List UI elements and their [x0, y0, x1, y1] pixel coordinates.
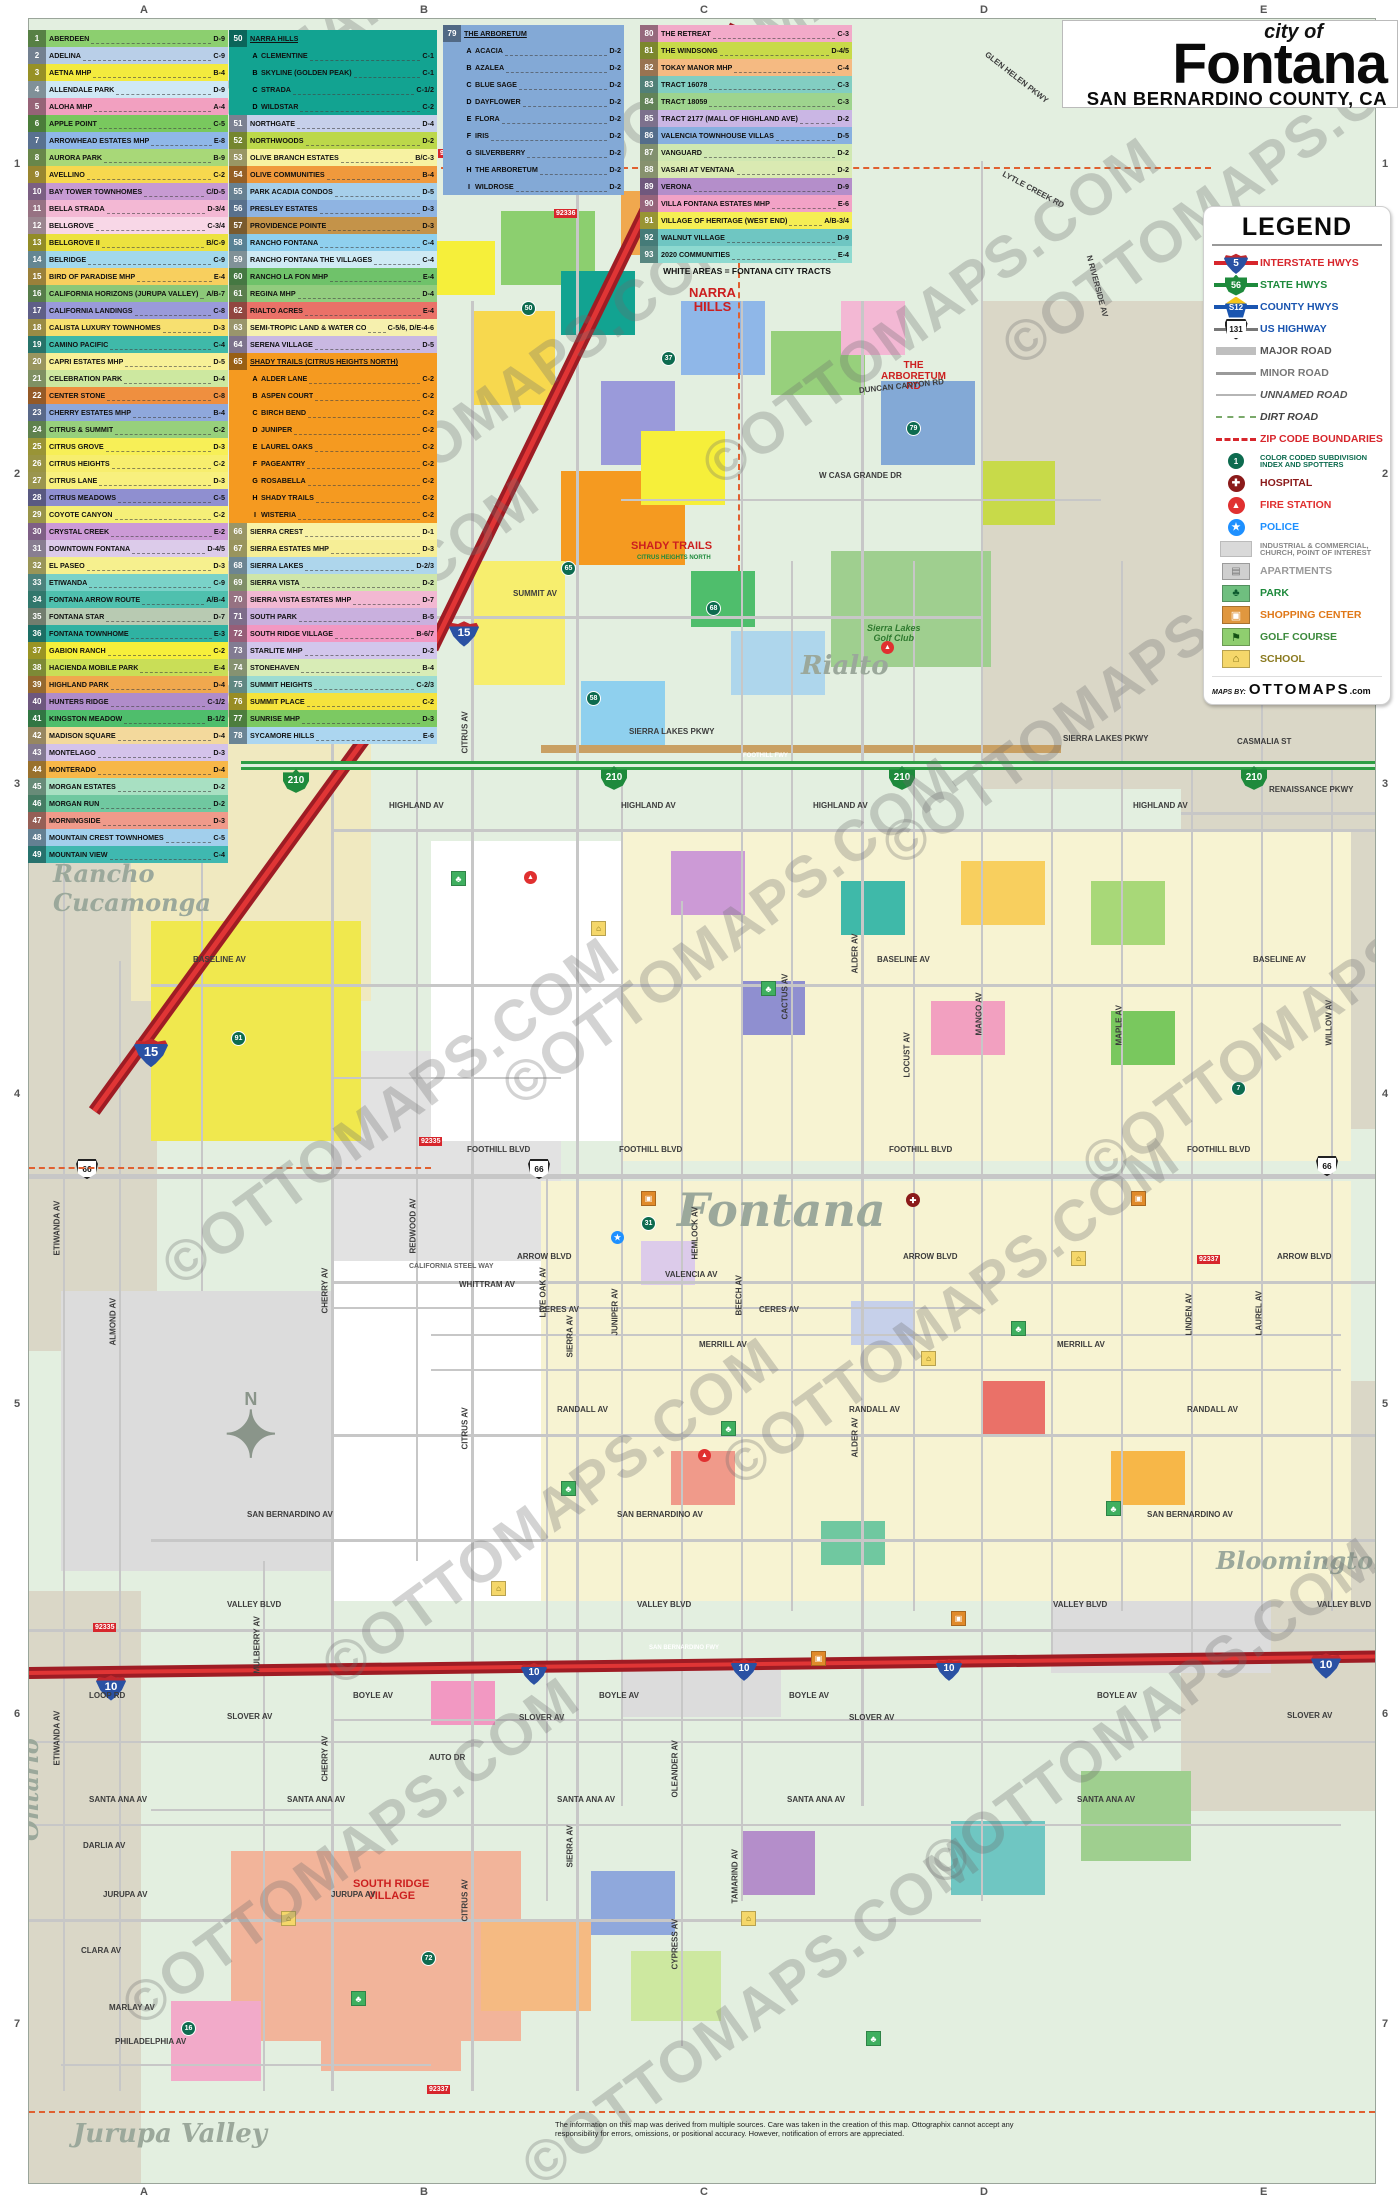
district-subtext: CITRUS HEIGHTS NORTH: [637, 555, 711, 561]
index-subdivision-name: APPLE POINT: [49, 119, 97, 128]
street-label: HEMLOCK AV: [691, 1207, 700, 1260]
index-row: 11BELLA STRADAD-3/4: [28, 200, 228, 217]
index-grid-ref: D-2: [609, 97, 621, 106]
subdivision-spotter: 16: [181, 2021, 196, 2036]
index-leader: [107, 203, 206, 213]
city-label: Fontana: [677, 1183, 886, 1237]
index-number-badge: 26: [28, 455, 46, 472]
index-block-header: 50NARRA HILLS: [229, 30, 437, 47]
road: [621, 761, 623, 1806]
index-sub-letter: A: [249, 374, 261, 383]
legend-icon-cell: ▤: [1212, 563, 1260, 580]
credit-tld: .com: [1350, 686, 1371, 696]
legend-row: ⌂SCHOOL: [1212, 648, 1382, 670]
legend-divider: [1212, 244, 1382, 246]
grid-row-label: 1: [1382, 158, 1388, 170]
legend-label: US HIGHWAY: [1260, 324, 1327, 335]
index-number-badge: 76: [229, 693, 247, 710]
index-grid-ref: C-2: [213, 510, 225, 519]
street-label: ARROW BLVD: [903, 1252, 958, 1261]
index-row: 44MONTERADOD-4: [28, 761, 228, 778]
index-grid-ref: D-3: [213, 748, 225, 757]
index-number-badge: 51: [229, 115, 247, 132]
index-number-badge: 77: [229, 710, 247, 727]
street-label: CLARA AV: [81, 1946, 121, 1955]
index-subdivision-name: AURORA PARK: [49, 153, 102, 162]
index-number-badge: 7: [28, 132, 46, 149]
index-row: 39HIGHLAND PARKD-4: [28, 676, 228, 693]
index-number-badge: 11: [28, 200, 46, 217]
index-number-badge: 53: [229, 149, 247, 166]
unnamed-road-icon: [1216, 394, 1256, 396]
index-number-badge: 40: [28, 693, 46, 710]
road: [29, 1824, 1341, 1826]
state-shield-icon: 56: [1225, 275, 1247, 296]
police-icon: ★: [1228, 519, 1245, 536]
index-grid-ref: C-9: [213, 51, 225, 60]
index-row: 71SOUTH PARKB-5: [229, 608, 437, 625]
index-subdivision-name: AETNA MHP: [49, 68, 91, 77]
legend-label: COLOR CODED SUBDIVISION INDEX AND SPOTTE…: [1260, 454, 1367, 469]
index-grid-ref: D-3: [213, 442, 225, 451]
index-grid-ref: C-2: [422, 442, 434, 451]
index-subdivision-name: MONTELAGO: [49, 748, 96, 757]
index-grid-ref: C-1/2: [207, 697, 225, 706]
index-row: 16CALIFORNIA HORIZONS (JURUPA VALLEY)A/B…: [28, 285, 228, 302]
index-number-badge: 89: [640, 178, 658, 195]
index-leader: [103, 815, 212, 825]
index-leader: [327, 169, 421, 179]
index-number-badge: 20: [28, 353, 46, 370]
fontana-map-page: 1515152102102102101010101010666666923369…: [0, 0, 1400, 2199]
grid-column-label: E: [1260, 4, 1267, 16]
index-number-badge: 70: [229, 591, 247, 608]
legend-icon-cell: 56: [1212, 275, 1260, 296]
index-number-badge: 61: [229, 285, 247, 302]
index-leader: [101, 798, 211, 808]
index-subdivision-name: ALLENDALE PARK: [49, 85, 114, 94]
patch-golf: [831, 551, 991, 667]
index-number-badge: 1: [28, 30, 46, 47]
index-row: 62RIALTO ACRESE-4: [229, 302, 437, 319]
grid-row-label: 4: [14, 1088, 20, 1100]
index-row: 43MONTELAGOD-3: [28, 744, 228, 761]
index-number-badge: 28: [28, 489, 46, 506]
road: [63, 841, 65, 2091]
index-grid-ref: E-4: [423, 306, 434, 315]
legend-icon-cell: ✚: [1212, 475, 1260, 492]
index-grid-ref: D-4: [213, 680, 225, 689]
index-leader: [309, 373, 420, 383]
index-row: 26CITRUS HEIGHTSC-2: [28, 455, 228, 472]
index-leader: [96, 220, 206, 230]
index-sub-letter: B: [249, 391, 261, 400]
index-number-badge: 86: [640, 127, 658, 144]
major-road-icon: [1216, 347, 1256, 355]
index-grid-ref: C-2: [422, 374, 434, 383]
index-grid-ref: E-4: [423, 272, 434, 281]
index-leader: [306, 135, 421, 145]
street-label: TAMARIND AV: [731, 1849, 740, 1904]
index-number-badge: 30: [28, 523, 46, 540]
zip-code-label: 92336: [554, 209, 577, 218]
index-grid-ref: C-2: [422, 425, 434, 434]
index-leader: [93, 67, 211, 77]
index-number-badge: 42: [28, 727, 46, 744]
index-subdivision-name: RANCHO LA FON MHP: [250, 272, 328, 281]
index-leader: [727, 232, 836, 242]
street-label: SANTA ANA AV: [287, 1795, 345, 1804]
street-label: CITRUS AV: [461, 1879, 470, 1921]
park-icon: ♣: [1011, 1321, 1026, 1336]
road: [1331, 761, 1333, 1611]
index-leader: [125, 356, 211, 366]
index-leader: [99, 475, 211, 485]
index-grid-ref: D-4: [213, 731, 225, 740]
subdivision-spotter: 68: [706, 601, 721, 616]
index-row: 52NORTHWOODSD-2: [229, 132, 437, 149]
golf-club-label: Sierra Lakes Golf Club: [867, 623, 921, 643]
index-number-badge: 44: [28, 761, 46, 778]
index-grid-ref: D-9: [213, 85, 225, 94]
index-leader: [308, 475, 421, 485]
subdivision-spotter: 37: [661, 351, 676, 366]
index-leader: [305, 560, 414, 570]
index-subdivision-name: RANCHO FONTANA THE VILLAGES: [250, 255, 372, 264]
street-label: ARROW BLVD: [1277, 1252, 1332, 1261]
index-number-badge: 9: [28, 166, 46, 183]
index-subdivision-name: SIERRA LAKES: [250, 561, 303, 570]
index-sub-letter: F: [249, 459, 261, 468]
index-leader: [298, 509, 420, 519]
index-number-badge: 27: [28, 472, 46, 489]
index-leader: [137, 271, 212, 281]
index-subdivision-name: DOWNTOWN FONTANA: [49, 544, 130, 553]
legend-row: S12COUNTY HWYS: [1212, 296, 1382, 318]
street-label: RANDALL AV: [1187, 1405, 1238, 1414]
index-subdivision-name: 2020 COMMUNITIES: [661, 250, 730, 259]
title-fontana: Fontana: [1063, 41, 1387, 88]
index-number-badge: 12: [28, 217, 46, 234]
zip-code-label: 92337: [427, 2085, 450, 2094]
index-sub-letter: F: [463, 131, 475, 140]
index-leader: [133, 407, 211, 417]
index-leader: [709, 96, 835, 106]
index-grid-ref: C-2: [422, 510, 434, 519]
index-grid-ref: C-4: [837, 63, 849, 72]
park-icon: ♣: [1106, 1501, 1121, 1516]
index-sub-letter: H: [249, 493, 261, 502]
index-grid-ref: D-3: [213, 476, 225, 485]
index-leader: [302, 577, 421, 587]
road: [861, 301, 864, 1806]
index-grid-ref: E-8: [214, 136, 225, 145]
street-label: SAN BERNARDINO AV: [247, 1510, 333, 1519]
index-grid-ref: C-5: [213, 493, 225, 502]
index-sub-row: BSKYLINE (GOLDEN PEAK)C-1: [229, 64, 437, 81]
city-label: Ontario: [28, 1738, 44, 1841]
index-row: 75SUMMIT HEIGHTSC-2/3: [229, 676, 437, 693]
patch: [981, 461, 1055, 525]
index-grid-ref: D-2: [422, 646, 434, 655]
shopping-center-icon: ▣: [1222, 606, 1250, 624]
subdivision-spotter: 58: [586, 691, 601, 706]
index-number-badge: 68: [229, 557, 247, 574]
street-label: MULBERRY AV: [253, 1616, 262, 1673]
police-icon: ★: [611, 1231, 624, 1244]
index-sub-letter: C: [249, 408, 261, 417]
index-sub-row: HTHE ARBORETUMD-2: [443, 161, 624, 178]
legend-icon-cell: 1: [1212, 452, 1260, 470]
index-subdivision-name: SYCAMORE HILLS: [250, 731, 314, 740]
street-label: CHERRY AV: [321, 1736, 330, 1782]
index-leader: [108, 645, 212, 655]
index-number-badge: 57: [229, 217, 247, 234]
index-number-badge: 78: [229, 727, 247, 744]
patch: [481, 1921, 591, 2011]
index-sub-letter: D: [249, 425, 261, 434]
street-label: CYPRESS AV: [671, 1919, 680, 1970]
road: [61, 2064, 431, 2066]
index-row: 89VERONAD-9: [640, 178, 852, 195]
index-number-badge: 91: [640, 212, 658, 229]
index-row: 33ETIWANDAC-9: [28, 574, 228, 591]
school-icon: ⌂: [1222, 650, 1250, 668]
street-label: HIGHLAND AV: [1133, 801, 1188, 810]
index-grid-ref: C-3: [837, 29, 849, 38]
index-subdivision-name: CRYSTAL CREEK: [49, 527, 109, 536]
index-sub-letter: I: [249, 510, 261, 519]
index-row: 5ALOHA MHPA-4: [28, 98, 228, 115]
index-row: 90VILLA FONTANA ESTATES MHPE-6: [640, 195, 852, 212]
index-number-badge: 19: [28, 336, 46, 353]
grid-row-label: 3: [1382, 778, 1388, 790]
index-leader: [107, 390, 211, 400]
grid-column-label: D: [980, 2186, 988, 2198]
index-grid-ref: B-4: [213, 408, 225, 417]
index-leader: [144, 186, 204, 196]
index-subdivision-name: TOKAY MANOR MHP: [661, 63, 732, 72]
index-grid-ref: A/B-7: [206, 289, 225, 298]
legend-icon-cell: [1212, 438, 1260, 441]
index-row: 86VALENCIA TOWNHOUSE VILLASD-5: [640, 127, 852, 144]
street-label: MERRILL AV: [1057, 1340, 1105, 1349]
index-row: 66SIERRA CRESTD-1: [229, 523, 437, 540]
index-subdivision-name: VERONA: [661, 182, 692, 191]
index-number-badge: 32: [28, 557, 46, 574]
grid-row-label: 6: [14, 1708, 20, 1720]
index-subdivision-name: VANGUARD: [661, 148, 702, 157]
index-sub-row: FPAGEANTRYC-2: [229, 455, 437, 472]
fire-station-icon: ▲: [524, 871, 537, 884]
index-grid-ref: C/D-5: [206, 187, 225, 196]
index-subdivision-name: NORTHGATE: [250, 119, 295, 128]
index-grid-ref: C-2: [422, 476, 434, 485]
legend-icon-cell: ★: [1212, 519, 1260, 536]
patch: [931, 1001, 1005, 1055]
freeway-label: FOOTHILL FWY: [743, 753, 788, 759]
index-row: 58RANCHO FONTANAC-4: [229, 234, 437, 251]
index-subdivision-name: STONEHAVEN: [250, 663, 299, 672]
legend-label: POLICE: [1260, 522, 1299, 533]
index-column: 1ABERDEEND-92ADELINAC-93AETNA MHPB-44ALL…: [28, 30, 228, 863]
index-leader: [772, 198, 836, 208]
interstate-shield-icon: 5: [1224, 252, 1248, 274]
street-label: JURUPA AV: [103, 1890, 147, 1899]
index-leader: [124, 713, 205, 723]
street-label: JUNIPER AV: [611, 1288, 620, 1335]
index-leader: [118, 492, 211, 502]
legend-row: DIRT ROAD: [1212, 406, 1382, 428]
index-sub-letter: I: [463, 182, 475, 191]
grid-row-label: 1: [14, 158, 20, 170]
index-number-badge: 90: [640, 195, 658, 212]
index-grid-ref: B-4: [422, 663, 434, 672]
state-route-shield: 210: [601, 766, 627, 790]
index-subdivision-name: THE ARBORETUM: [475, 165, 538, 174]
index-grid-ref: E-3: [214, 629, 225, 638]
index-number-badge: 74: [229, 659, 247, 676]
index-leader: [298, 288, 421, 298]
index-row: 73STARLITE MHPD-2: [229, 642, 437, 659]
index-grid-ref: D-5: [422, 187, 434, 196]
index-leader: [200, 288, 204, 298]
index-leader: [305, 526, 420, 536]
index-grid-ref: E-6: [838, 199, 849, 208]
street-label: FOOTHILL BLVD: [619, 1145, 682, 1154]
index-grid-ref: C-2: [422, 459, 434, 468]
index-number-badge: 83: [640, 76, 658, 93]
index-leader: [320, 203, 421, 213]
index-subdivision-name: WISTERIA: [261, 510, 296, 519]
index-subdivision-name: FONTANA STAR: [49, 612, 104, 621]
map-title-block: city of Fontana SAN BERNARDINO COUNTY, C…: [1062, 20, 1398, 108]
legend-row: ♣PARK: [1212, 582, 1382, 604]
index-row: 23CHERRY ESTATES MHPB-4: [28, 404, 228, 421]
index-subdivision-name: SHADY TRAILS (CITRUS HEIGHTS NORTH): [250, 357, 398, 366]
index-leader: [368, 322, 385, 332]
district-label: SHADY TRAILS: [631, 541, 712, 553]
legend-label: FIRE STATION: [1260, 500, 1331, 511]
index-leader: [106, 611, 211, 621]
index-row: 32EL PASEOD-3: [28, 557, 228, 574]
index-subdivision-name: PAGEANTRY: [261, 459, 305, 468]
index-leader: [98, 747, 212, 757]
legend-label: ZIP CODE BOUNDARIES: [1260, 434, 1383, 445]
legend-icon-cell: [1212, 541, 1260, 557]
index-grid-ref: B-1/2: [207, 714, 225, 723]
index-grid-ref: C-4: [213, 850, 225, 859]
legend-icon-cell: [1212, 372, 1260, 375]
index-leader: [305, 645, 421, 655]
index-sub-letter: B: [463, 63, 475, 72]
index-row: 14BELRIDGEC-9: [28, 251, 228, 268]
index-number-badge: 65: [229, 353, 247, 370]
city-label: Jurupa Valley: [73, 2119, 267, 2149]
index-row: 92WALNUT VILLAGED-9: [640, 229, 852, 246]
legend-heading: LEGEND: [1212, 213, 1382, 242]
index-subdivision-name: CHERRY ESTATES MHP: [49, 408, 131, 417]
index-leader: [166, 832, 212, 842]
index-number-badge: 22: [28, 387, 46, 404]
street-label: SANTA ANA AV: [557, 1795, 615, 1804]
subdivision-spotter: 91: [231, 1031, 246, 1046]
index-leader: [115, 509, 212, 519]
index-grid-ref: C-2: [213, 425, 225, 434]
index-grid-ref: D-7: [422, 595, 434, 604]
fire-station-icon: ▲: [698, 1449, 711, 1462]
index-leader: [315, 441, 421, 451]
index-sub-row: CSTRADAC-1/2: [229, 81, 437, 98]
index-leader: [118, 730, 212, 740]
patch: [321, 1961, 461, 2071]
index-leader: [776, 130, 836, 140]
compass-star: ✦: [224, 1410, 278, 1461]
index-number-badge: 37: [28, 642, 46, 659]
street-label: WHITTRAM AV: [459, 1280, 515, 1289]
index-sub-letter: A: [463, 46, 475, 55]
index-number-badge: 60: [229, 268, 247, 285]
index-row: 18CALISTA LUXURY TOWNHOMESD-3: [28, 319, 228, 336]
speedway-label: CALIFORNIA STEEL WAY: [409, 1263, 494, 1270]
index-subdivision-name: ASPEN COURT: [261, 391, 313, 400]
index-subdivision-name: AVELLINO: [49, 170, 85, 179]
legend-label: HOSPITAL: [1260, 478, 1312, 489]
index-grid-ref: C-5/6, D/E-4-6: [388, 323, 434, 332]
index-grid-ref: D-4: [422, 289, 434, 298]
street-label: MAPLE AV: [1115, 1005, 1124, 1045]
index-number-badge: 14: [28, 251, 46, 268]
index-row: 10BAY TOWER TOWNHOMESC/D-5: [28, 183, 228, 200]
road: [416, 761, 418, 1561]
index-row: 2ADELINAC-9: [28, 47, 228, 64]
index-row: 40HUNTERS RIDGEC-1/2: [28, 693, 228, 710]
index-leader: [704, 147, 835, 157]
index-subdivision-name: SIERRA CREST: [250, 527, 303, 536]
street-label: LAUREL AV: [1255, 1291, 1264, 1336]
grid-row-label: 2: [1382, 468, 1388, 480]
index-row: 21CELEBRATION PARKD-4: [28, 370, 228, 387]
index-grid-ref: D-3/4: [207, 204, 225, 213]
index-row: 54OLIVE COMMUNITIESB-4: [229, 166, 437, 183]
index-subdivision-name: WALNUT VILLAGE: [661, 233, 725, 242]
index-leader: [110, 849, 212, 859]
index-number-badge: 85: [640, 110, 658, 127]
index-grid-ref: D-2: [837, 148, 849, 157]
index-row: 36FONTANA TOWNHOMEE-3: [28, 625, 228, 642]
index-leader: [353, 594, 420, 604]
index-subdivision-name: VALENCIA TOWNHOUSE VILLAS: [661, 131, 774, 140]
index-leader: [732, 249, 836, 259]
index-grid-ref: D-2/3: [416, 561, 434, 570]
index-number-badge: 52: [229, 132, 247, 149]
index-row: 68SIERRA LAKESD-2/3: [229, 557, 437, 574]
index-subdivision-name: MONTERADO: [49, 765, 96, 774]
index-leader: [111, 696, 206, 706]
index-leader: [713, 28, 836, 38]
index-number-badge: 36: [28, 625, 46, 642]
index-number-badge: 69: [229, 574, 247, 591]
index-subdivision-name: ALOHA MHP: [49, 102, 92, 111]
index-subdivision-name: ABERDEEN: [49, 34, 89, 43]
index-row: 74STONEHAVENB-4: [229, 659, 437, 676]
index-leader: [104, 152, 211, 162]
index-sub-letter: E: [249, 442, 261, 451]
park-icon: ♣: [351, 1991, 366, 2006]
index-subdivision-name: ADELINA: [49, 51, 81, 60]
index-leader: [307, 458, 420, 468]
legend-row: ★POLICE: [1212, 516, 1382, 538]
